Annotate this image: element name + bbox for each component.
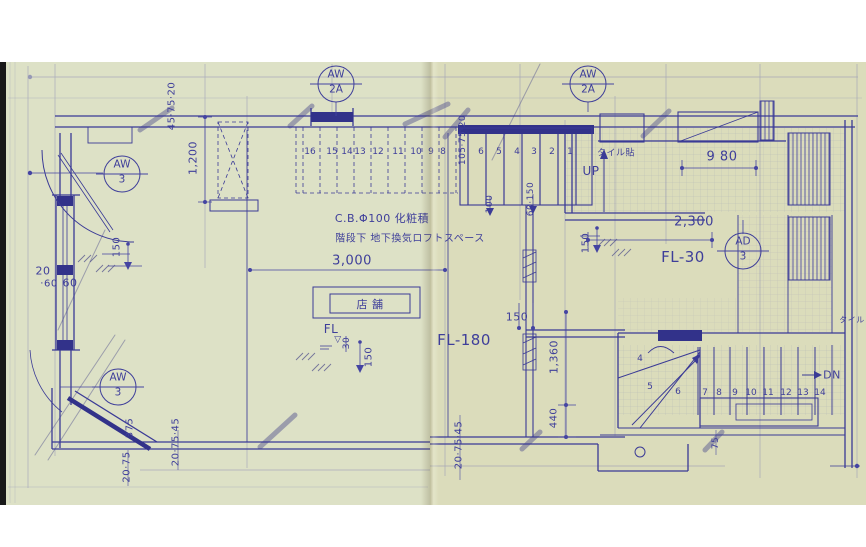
scan-margin-top bbox=[0, 0, 866, 62]
door-swings bbox=[30, 150, 134, 412]
hatched-wall-stubs bbox=[523, 250, 536, 370]
tile-hatch-areas bbox=[566, 101, 845, 415]
scan-margin-bottom bbox=[0, 505, 866, 547]
stair-upper-dashed-lines bbox=[218, 122, 458, 198]
scan-black-edge bbox=[0, 0, 6, 505]
ground-hatch-marks bbox=[78, 239, 631, 371]
blueprint-scan: 45·75·201,200105·75·20C.B.Φ100 化粧積階段下 地下… bbox=[0, 0, 866, 547]
plan-linework bbox=[0, 0, 866, 547]
